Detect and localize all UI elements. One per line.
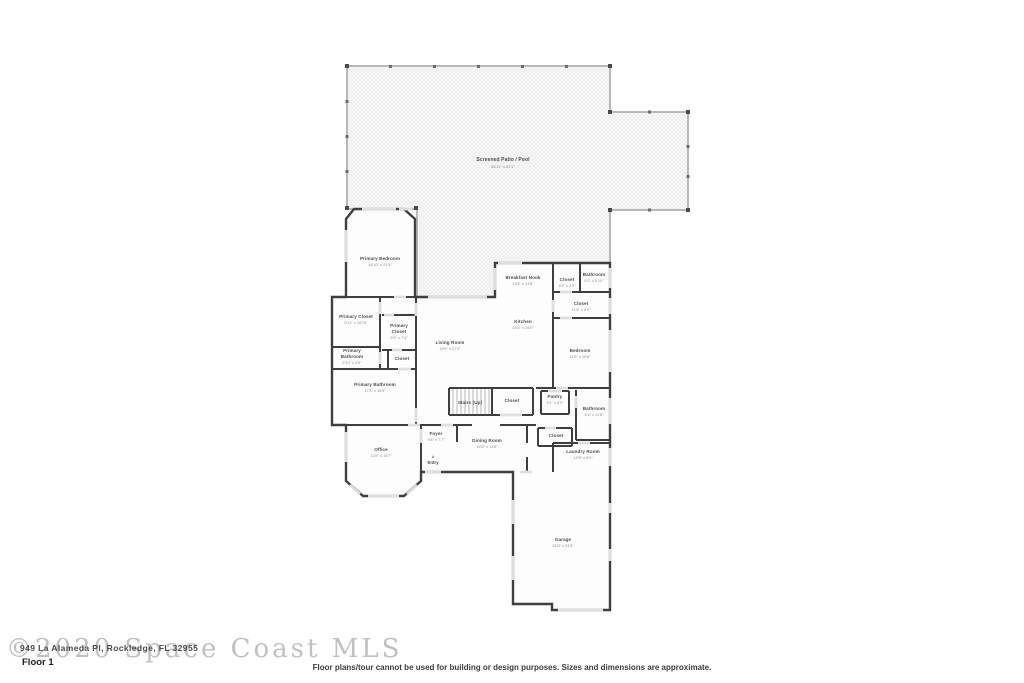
property-address: 949 La Alameda Pl, Rockledge, FL 32955 (20, 643, 198, 653)
floor-plan-page: Screened Patio / Pool 56'11" x 51'1" Pri… (0, 0, 1024, 683)
floor-plan-drawing (0, 0, 1024, 683)
disclaimer-text: Floor plans/tour cannot be used for buil… (0, 663, 1024, 672)
entry-label: Entry (428, 460, 439, 465)
entry-marker: ▲ Entry (428, 455, 439, 465)
